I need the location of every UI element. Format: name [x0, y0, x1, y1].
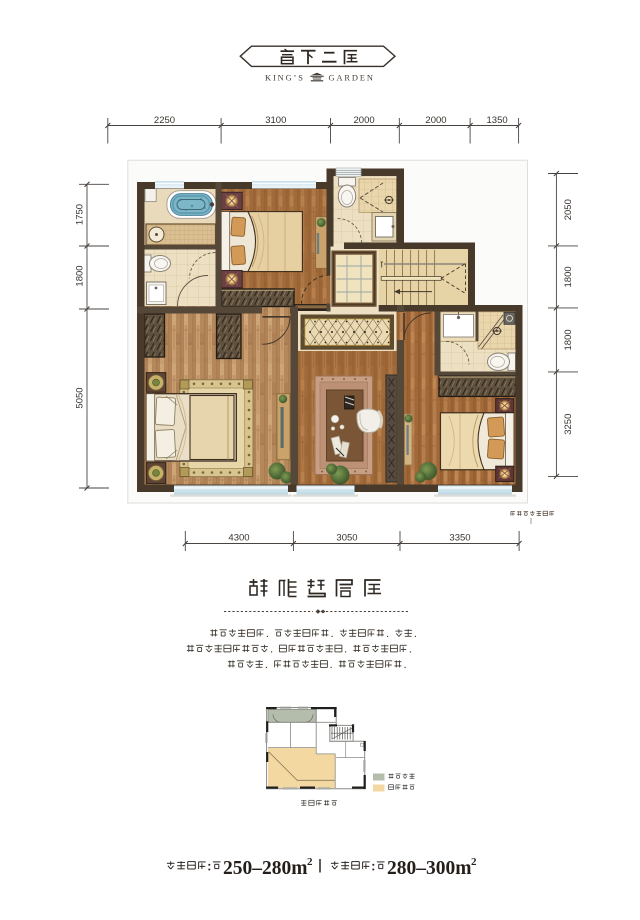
svg-text:280–300m: 280–300m — [387, 858, 472, 879]
svg-text:250–280m: 250–280m — [223, 858, 308, 879]
svg-text:1800: 1800 — [563, 266, 574, 287]
svg-text:1800: 1800 — [75, 265, 86, 286]
svg-text:2050: 2050 — [563, 199, 574, 220]
svg-text:5050: 5050 — [75, 387, 86, 408]
svg-text:1800: 1800 — [563, 329, 574, 350]
svg-text:2: 2 — [307, 856, 313, 868]
svg-text:2000: 2000 — [425, 115, 446, 126]
svg-text:GARDEN: GARDEN — [329, 74, 375, 83]
svg-text:KING’S: KING’S — [265, 74, 305, 83]
svg-text:4300: 4300 — [228, 533, 249, 544]
svg-text:2000: 2000 — [354, 115, 375, 126]
svg-text:3050: 3050 — [336, 533, 357, 544]
svg-text:2: 2 — [471, 856, 477, 868]
svg-text:3100: 3100 — [265, 115, 286, 126]
svg-text:3250: 3250 — [563, 414, 574, 435]
svg-text:1750: 1750 — [75, 204, 86, 225]
svg-text:1350: 1350 — [487, 115, 508, 126]
svg-text:3350: 3350 — [449, 533, 470, 544]
svg-text:2250: 2250 — [154, 115, 175, 126]
